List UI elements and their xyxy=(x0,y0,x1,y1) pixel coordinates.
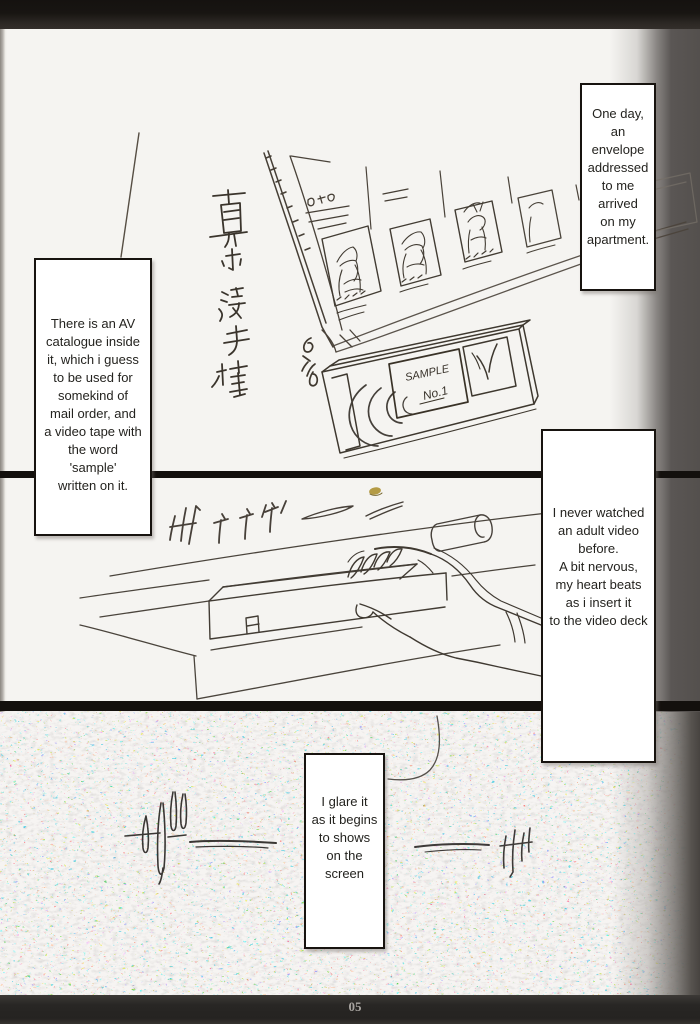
svg-text:SAMPLE: SAMPLE xyxy=(404,363,451,384)
